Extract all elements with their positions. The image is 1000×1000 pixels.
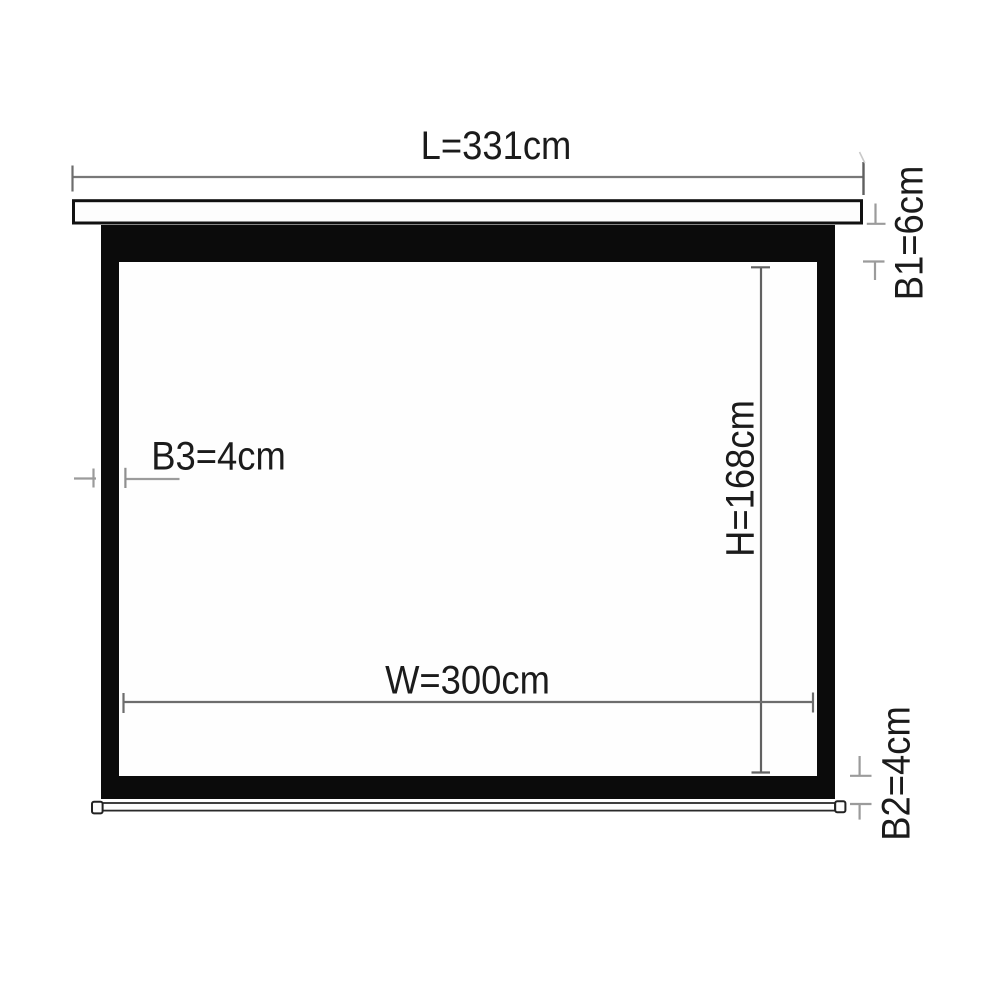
svg-text:W=300cm: W=300cm — [385, 658, 550, 703]
svg-text:B1=6cm: B1=6cm — [887, 166, 932, 301]
svg-text:B3=4cm: B3=4cm — [151, 434, 286, 479]
svg-text:H=168cm: H=168cm — [718, 400, 763, 557]
svg-text:B2=4cm: B2=4cm — [874, 706, 919, 841]
svg-text:L=331cm: L=331cm — [421, 123, 572, 168]
